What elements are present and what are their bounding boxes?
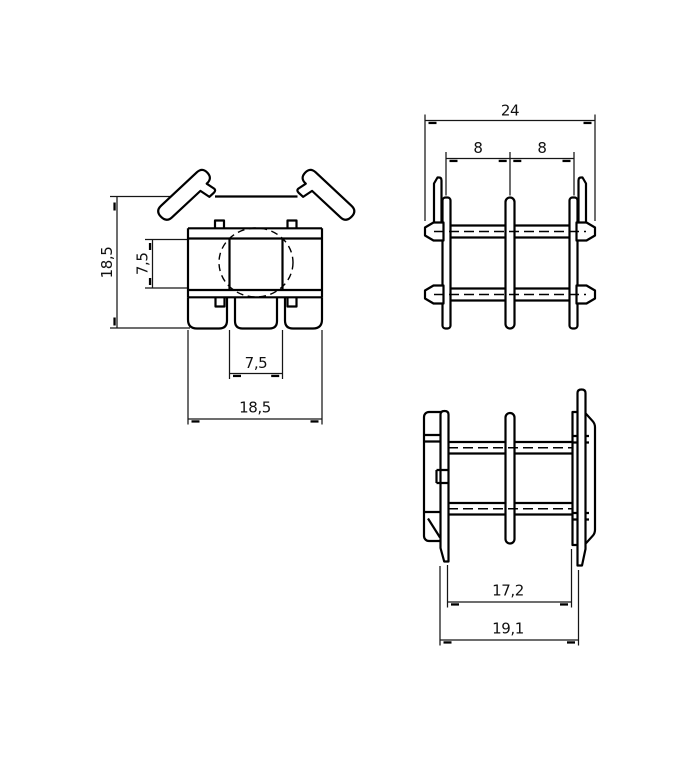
top-pitch-right-label: 8 [537,139,546,157]
tick [113,318,115,326]
front-left-wing-clip [156,167,221,230]
tick [149,243,151,250]
tick [149,278,151,285]
top-front-slat [443,198,451,329]
top-right-slats [570,178,596,329]
tick [192,420,200,422]
tick [451,603,459,605]
bottom-center-fin [506,413,515,544]
tick [584,122,592,124]
front-slot-width-label: 7,5 [245,354,268,372]
front-body-outline [188,221,322,307]
drawing-page: 18,5 7,5 7,5 18,5 24 8 8 [0,0,695,758]
tick [429,122,437,124]
top-center-fin [506,198,515,329]
front-view: 18,5 7,5 7,5 18,5 [98,167,357,424]
tick [513,160,521,162]
top-overall-label: 24 [501,102,519,120]
tick [311,420,319,422]
front-width-label: 18,5 [239,399,271,417]
tick [567,641,575,643]
front-height-label: 18,5 [98,247,116,279]
tick [450,160,458,162]
bottom-overall-label: 19,1 [492,620,524,638]
bottom-view: 17,2 19,1 [424,390,595,646]
technical-drawing-canvas: 18,5 7,5 7,5 18,5 24 8 8 [0,0,695,758]
front-dimension-lines [110,197,322,425]
bottom-left-thin-slat [441,411,449,562]
tick [113,203,115,211]
top-pitch-left-label: 8 [473,139,482,157]
tick [499,160,507,162]
bottom-right-thin-slat [578,390,586,566]
tick [444,641,452,643]
tick [271,375,279,377]
front-feet-outline [188,297,322,328]
top-view: 24 8 8 [425,102,595,329]
tick [233,375,241,377]
bottom-inner-label: 17,2 [492,582,524,600]
top-left-slats [425,178,451,329]
tick [560,603,568,605]
front-dimension-ticks [113,203,318,423]
front-inner-height-label: 7,5 [134,252,152,275]
front-right-wing-clip [292,167,357,230]
top-rear-slat [434,178,442,225]
tick [563,160,571,162]
